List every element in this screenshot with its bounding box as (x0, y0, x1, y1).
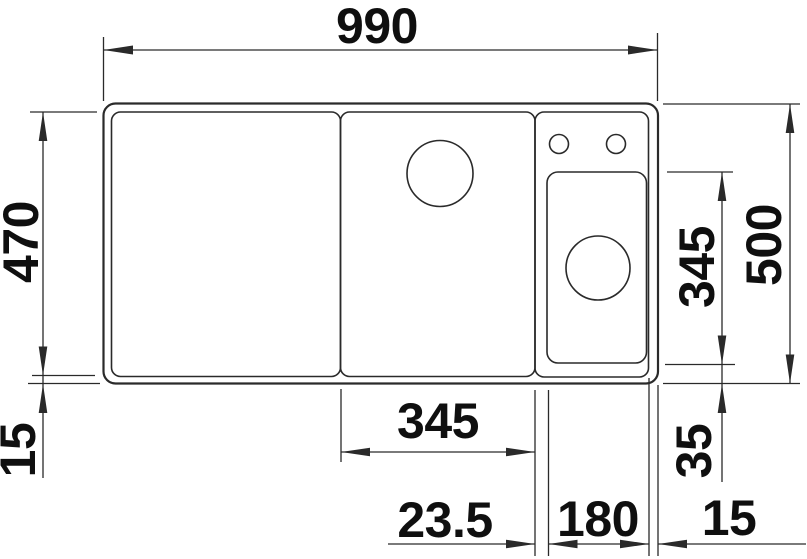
dim-label-small-bowl-depth: 345 (672, 226, 722, 308)
tap-hole-left (550, 135, 569, 154)
sink-inner-outlines (112, 112, 649, 377)
sink-dimension-drawing: 990 470 15 500 345 35 345 23.5 180 15 (0, 0, 807, 559)
dim-label-overall-depth: 500 (739, 204, 789, 286)
main-bowl-drain-circle (407, 141, 473, 207)
dim-label-inner-depth: 470 (0, 201, 46, 283)
dim-label-overall-width: 990 (336, 1, 418, 51)
dim-label-main-bowl-width: 345 (397, 396, 479, 446)
drainboard-area (112, 112, 341, 377)
accessory-compartment (535, 112, 649, 377)
main-bowl (341, 112, 536, 377)
dim-label-divider-width: 23.5 (397, 495, 492, 545)
tap-hole-right (607, 135, 626, 154)
small-bowl-drain-circle (566, 236, 630, 300)
dim-label-small-bowl-width: 180 (557, 494, 639, 544)
dim-label-rim-right: 15 (702, 493, 757, 543)
small-bowl (547, 172, 647, 363)
dim-label-bowl-bottom-offset: 35 (669, 424, 719, 479)
sink-outer-outline (104, 104, 659, 384)
dim-label-rim-left: 15 (0, 423, 43, 478)
